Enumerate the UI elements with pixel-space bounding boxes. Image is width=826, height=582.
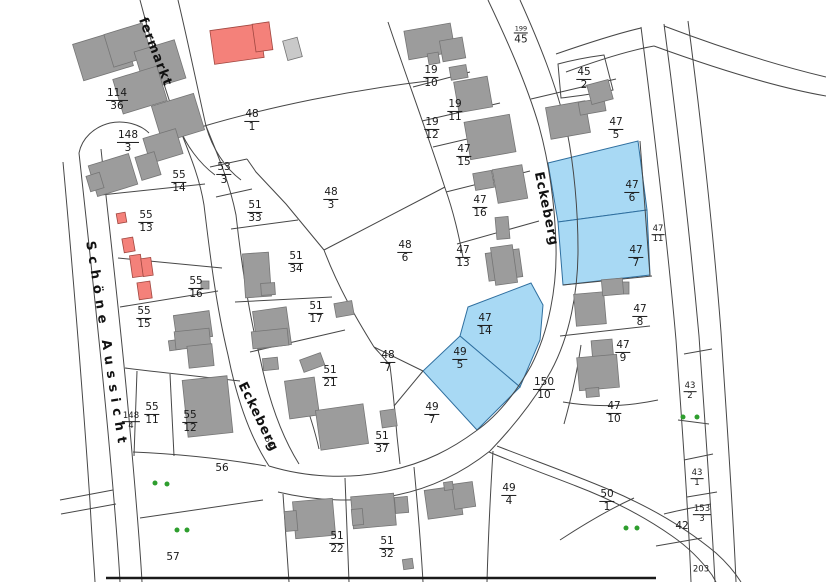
parcel-label: 5514 xyxy=(171,170,186,194)
parcel-label: 42 xyxy=(674,521,689,533)
parcel-label: 1911 xyxy=(447,99,462,123)
parcel-label: 432 xyxy=(684,382,697,402)
parcel-label: 4715 xyxy=(456,144,471,168)
parcel-label: 4711 xyxy=(652,225,665,245)
map-labels: 1143614834811994545247547647114771910191… xyxy=(0,0,826,582)
parcel-label: 483 xyxy=(323,187,338,211)
tree-icon xyxy=(624,526,629,531)
parcel-label: 19945 xyxy=(514,22,528,45)
tree-icon xyxy=(165,482,170,487)
parcel-label: 533 xyxy=(216,162,231,186)
parcel-label: 1483 xyxy=(117,130,139,154)
parcel-label: 5511 xyxy=(144,402,159,426)
parcel-label: 5512 xyxy=(182,410,197,434)
parcel-label: 5121 xyxy=(322,365,337,389)
parcel-label: 494 xyxy=(501,483,516,507)
parcel-label: 5117 xyxy=(308,301,323,325)
tree-icon xyxy=(185,528,190,533)
parcel-label: 5134 xyxy=(288,251,303,275)
parcel-label: 5515 xyxy=(136,306,151,330)
cadastral-map: 1143614834811994545247547647114771910191… xyxy=(0,0,826,582)
street-label: Eckeberg xyxy=(531,170,561,247)
tree-icon xyxy=(153,481,158,486)
parcel-label: 481 xyxy=(244,109,259,133)
parcel-label: 57 xyxy=(165,552,180,564)
parcel-label: 501 xyxy=(599,489,614,513)
parcel-label: 4713 xyxy=(455,245,470,269)
parcel-label: 11436 xyxy=(106,88,128,112)
parcel-label: 1533 xyxy=(693,505,711,525)
parcel-label: 479 xyxy=(615,340,630,364)
tree-icon xyxy=(681,415,686,420)
parcel-label: 4714 xyxy=(477,313,492,337)
parcel-label: 203 xyxy=(692,565,710,574)
tree-icon xyxy=(635,526,640,531)
parcel-label: 56 xyxy=(214,463,229,475)
parcel-label: 5137 xyxy=(374,431,389,455)
parcel-label: 5133 xyxy=(247,200,262,224)
parcel-label: 486 xyxy=(397,240,412,264)
parcel-label: 5122 xyxy=(329,531,344,555)
parcel-label: 15010 xyxy=(533,377,555,401)
parcel-label: 497 xyxy=(424,402,439,426)
street-label: Schöne Aussicht xyxy=(82,240,130,450)
tree-icon xyxy=(695,415,700,420)
parcel-label: 452 xyxy=(576,67,591,91)
street-label: fermarkt xyxy=(135,15,175,88)
parcel-label: 5516 xyxy=(188,276,203,300)
parcel-label: 4716 xyxy=(472,195,487,219)
parcel-label: 477 xyxy=(628,245,643,269)
parcel-label: 495 xyxy=(452,347,467,371)
parcel-label: 475 xyxy=(608,117,623,141)
parcel-label: 1912 xyxy=(424,117,439,141)
parcel-label: 4710 xyxy=(606,401,621,425)
parcel-label: 1910 xyxy=(423,65,438,89)
parcel-label: 487 xyxy=(380,350,395,374)
parcel-label: 431 xyxy=(691,469,704,489)
tree-icon xyxy=(175,528,180,533)
parcel-label: 5513 xyxy=(138,210,153,234)
parcel-label: 5132 xyxy=(379,536,394,560)
parcel-label: 478 xyxy=(632,304,647,328)
parcel-label: 476 xyxy=(624,180,639,204)
